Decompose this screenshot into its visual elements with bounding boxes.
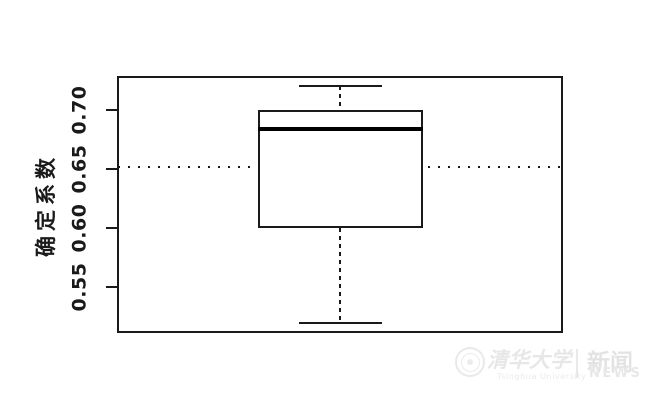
seal-core-dot [467, 359, 473, 365]
upper-whisker-cap [299, 85, 382, 87]
lower-whisker-cap [299, 322, 382, 324]
median-line [258, 127, 423, 131]
y-tick-label: 0.60 [64, 205, 94, 251]
y-tick-label-text: 0.65 [68, 145, 90, 194]
watermark-channel-en: NEWS [589, 366, 642, 381]
y-tick-label: 0.70 [64, 87, 94, 133]
watermark-cn-name: 清华大学 [487, 344, 571, 374]
y-tick-label: 0.65 [64, 146, 94, 192]
y-axis-title-text: 确定系数 [30, 153, 60, 257]
y-tick-mark [106, 168, 118, 170]
seal-inner-ring [461, 353, 480, 372]
y-tick-mark [106, 286, 118, 288]
y-axis-title: 确定系数 [28, 144, 62, 266]
y-tick-mark [106, 109, 118, 111]
y-tick-label-text: 0.55 [68, 263, 90, 312]
watermark-divider [576, 349, 578, 378]
y-tick-label-text: 0.70 [68, 86, 90, 135]
lower-whisker-line [339, 228, 341, 322]
boxplot-figure: 0.55 0.60 0.65 0.70 确定系数 清华大学 Tsinghua U… [0, 0, 650, 400]
watermark-en-name: Tsinghua University [497, 372, 586, 381]
y-tick-label: 0.55 [64, 264, 94, 310]
upper-whisker-line [339, 86, 341, 110]
y-tick-mark [106, 227, 118, 229]
y-tick-label-text: 0.60 [68, 204, 90, 253]
tsinghua-seal-logo-icon [455, 347, 485, 377]
